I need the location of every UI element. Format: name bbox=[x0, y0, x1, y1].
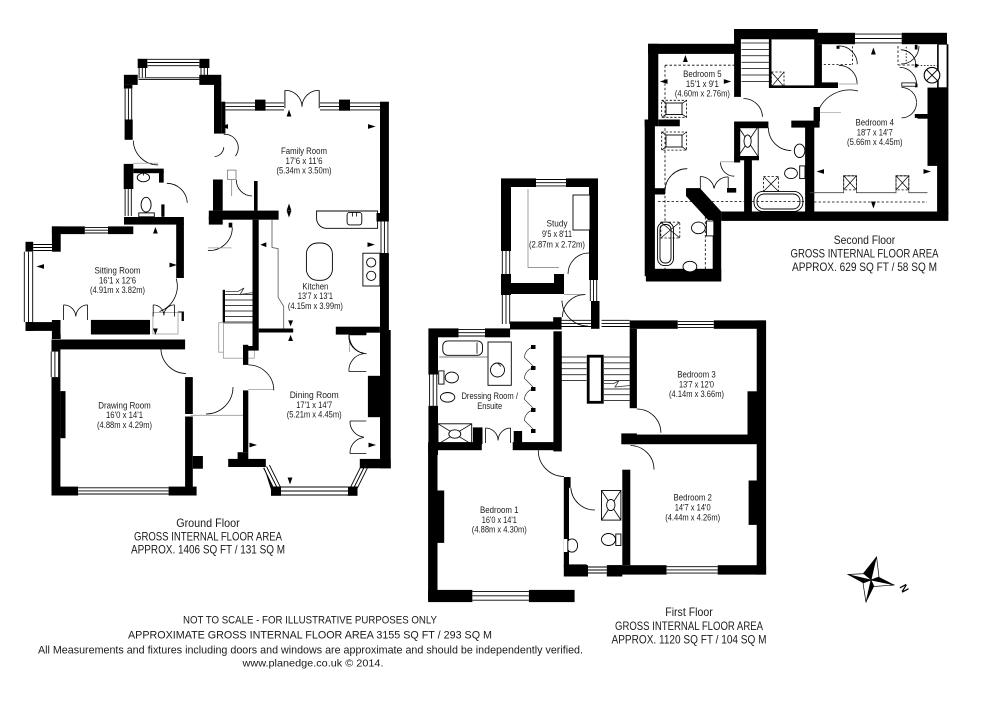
svg-text:(4.88m x 4.30m): (4.88m x 4.30m) bbox=[472, 525, 527, 535]
svg-text:Drawing Room: Drawing Room bbox=[98, 400, 151, 410]
svg-text:APPROX. 1406 SQ FT / 131 SQ M: APPROX. 1406 SQ FT / 131 SQ M bbox=[131, 542, 285, 556]
svg-text:(4.44m x 4.26m): (4.44m x 4.26m) bbox=[665, 512, 720, 522]
svg-text:13'7 x 13'1: 13'7 x 13'1 bbox=[298, 291, 333, 301]
svg-text:GROSS INTERNAL FLOOR AREA: GROSS INTERNAL FLOOR AREA bbox=[134, 529, 282, 543]
svg-text:16'1 x 12'6: 16'1 x 12'6 bbox=[99, 275, 136, 285]
svg-text:Dressing Room /: Dressing Room / bbox=[461, 391, 518, 401]
svg-text:Kitchen: Kitchen bbox=[302, 281, 328, 291]
svg-text:(5.34m x 3.50m): (5.34m x 3.50m) bbox=[277, 166, 332, 176]
svg-text:APPROXIMATE GROSS INTERNAL FLO: APPROXIMATE GROSS INTERNAL FLOOR AREA 31… bbox=[128, 630, 492, 642]
svg-text:GROSS INTERNAL FLOOR AREA: GROSS INTERNAL FLOOR AREA bbox=[791, 246, 939, 260]
svg-text:(4.15m x 3.99m): (4.15m x 3.99m) bbox=[288, 301, 343, 311]
svg-text:Sitting Room: Sitting Room bbox=[95, 266, 141, 276]
svg-text:(2.87m x 2.72m): (2.87m x 2.72m) bbox=[529, 239, 585, 249]
svg-text:(5.21m x 4.45m): (5.21m x 4.45m) bbox=[287, 410, 342, 420]
svg-text:15'1 x 9'1: 15'1 x 9'1 bbox=[686, 79, 719, 89]
svg-text:16'0 x 14'1: 16'0 x 14'1 bbox=[106, 410, 143, 420]
svg-text:Ensuite: Ensuite bbox=[477, 401, 502, 411]
svg-text:APPROX. 1120 SQ FT / 104 SQ M: APPROX. 1120 SQ FT / 104 SQ M bbox=[612, 632, 767, 646]
svg-text:APPROX. 629 SQ FT / 58 SQ M: APPROX. 629 SQ FT / 58 SQ M bbox=[792, 260, 937, 274]
svg-text:www.planedge.co.uk © 2014.: www.planedge.co.uk © 2014. bbox=[241, 659, 383, 670]
svg-text:Family Room: Family Room bbox=[281, 146, 327, 156]
svg-text:(4.14m x 3.66m): (4.14m x 3.66m) bbox=[669, 389, 724, 399]
svg-text:Bedroom 2: Bedroom 2 bbox=[673, 493, 712, 503]
svg-text:Study: Study bbox=[547, 219, 569, 229]
svg-text:Bedroom 3: Bedroom 3 bbox=[677, 369, 716, 379]
svg-text:17'6 x 11'6: 17'6 x 11'6 bbox=[286, 156, 323, 166]
svg-text:14'7 x 14'0: 14'7 x 14'0 bbox=[675, 503, 711, 513]
svg-text:Bedroom 1: Bedroom 1 bbox=[480, 505, 519, 515]
svg-text:(4.60m x 2.76m): (4.60m x 2.76m) bbox=[675, 89, 730, 99]
svg-text:(4.91m x 3.82m): (4.91m x 3.82m) bbox=[90, 285, 145, 295]
svg-text:Dining Room: Dining Room bbox=[290, 390, 339, 400]
svg-text:NOT TO SCALE - FOR ILLUSTRATIV: NOT TO SCALE - FOR ILLUSTRATIVE PURPOSES… bbox=[183, 615, 438, 627]
svg-text:All Measurements and fixtures: All Measurements and fixtures including … bbox=[38, 645, 583, 657]
svg-text:GROSS INTERNAL FLOOR AREA: GROSS INTERNAL FLOOR AREA bbox=[615, 619, 763, 633]
svg-text:Bedroom 5: Bedroom 5 bbox=[683, 69, 722, 79]
svg-text:9'5 x 8'11: 9'5 x 8'11 bbox=[542, 229, 572, 239]
svg-text:18'7 x 14'7: 18'7 x 14'7 bbox=[857, 127, 893, 137]
svg-text:17'1 x 14'7: 17'1 x 14'7 bbox=[296, 400, 332, 410]
svg-text:16'0 x 14'1: 16'0 x 14'1 bbox=[482, 515, 517, 525]
svg-text:Bedroom 4: Bedroom 4 bbox=[856, 118, 895, 128]
svg-text:13'7 x 12'0: 13'7 x 12'0 bbox=[679, 379, 714, 389]
svg-text:(5.66m x 4.45m): (5.66m x 4.45m) bbox=[847, 137, 903, 147]
svg-text:Second Floor: Second Floor bbox=[834, 233, 896, 247]
svg-text:(4.88m x 4.29m): (4.88m x 4.29m) bbox=[97, 420, 152, 430]
svg-text:First Floor: First Floor bbox=[665, 605, 713, 619]
svg-text:Ground Floor: Ground Floor bbox=[176, 516, 240, 530]
